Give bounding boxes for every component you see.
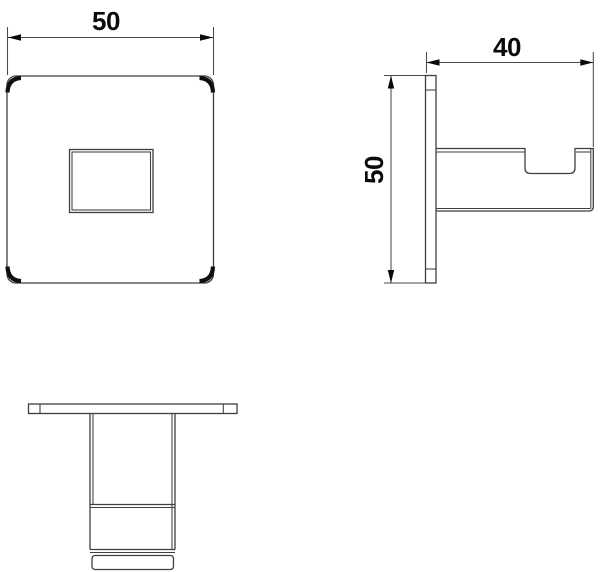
technical-drawing-sheet: 50 40 50 [0, 0, 600, 572]
hook-tip-bottom-view [92, 556, 174, 570]
arrowhead-left [427, 59, 440, 65]
arrowhead-right [200, 34, 213, 40]
corner-fillet-top-left [8, 78, 22, 93]
arrowhead-left [8, 34, 21, 40]
hook-arm-outline [436, 149, 593, 212]
front-width-value: 50 [92, 6, 120, 36]
bottom-plate-outline [29, 404, 238, 414]
side-height-value: 50 [359, 156, 389, 184]
front-view: 50 [7, 6, 214, 283]
side-depth-value: 40 [493, 32, 521, 62]
cad-drawing-svg: 50 40 50 [0, 0, 600, 572]
center-boss-outer [70, 150, 154, 213]
arrowhead-bottom [388, 270, 394, 283]
corner-fillet-top-right [200, 78, 214, 93]
side-height-dimension: 50 [359, 76, 426, 284]
front-width-dimension: 50 [8, 6, 214, 75]
bottom-view [29, 404, 238, 570]
side-plate-outline [426, 76, 437, 284]
corner-fillet-bottom-left [8, 267, 22, 282]
arrowhead-top [388, 76, 394, 89]
side-depth-dimension: 40 [427, 32, 594, 147]
side-view: 40 50 [359, 32, 593, 283]
center-boss-inner [72, 152, 151, 210]
front-plate-outline [7, 76, 214, 283]
corner-fillet-bottom-right [200, 267, 214, 282]
arrowhead-right [580, 59, 593, 65]
